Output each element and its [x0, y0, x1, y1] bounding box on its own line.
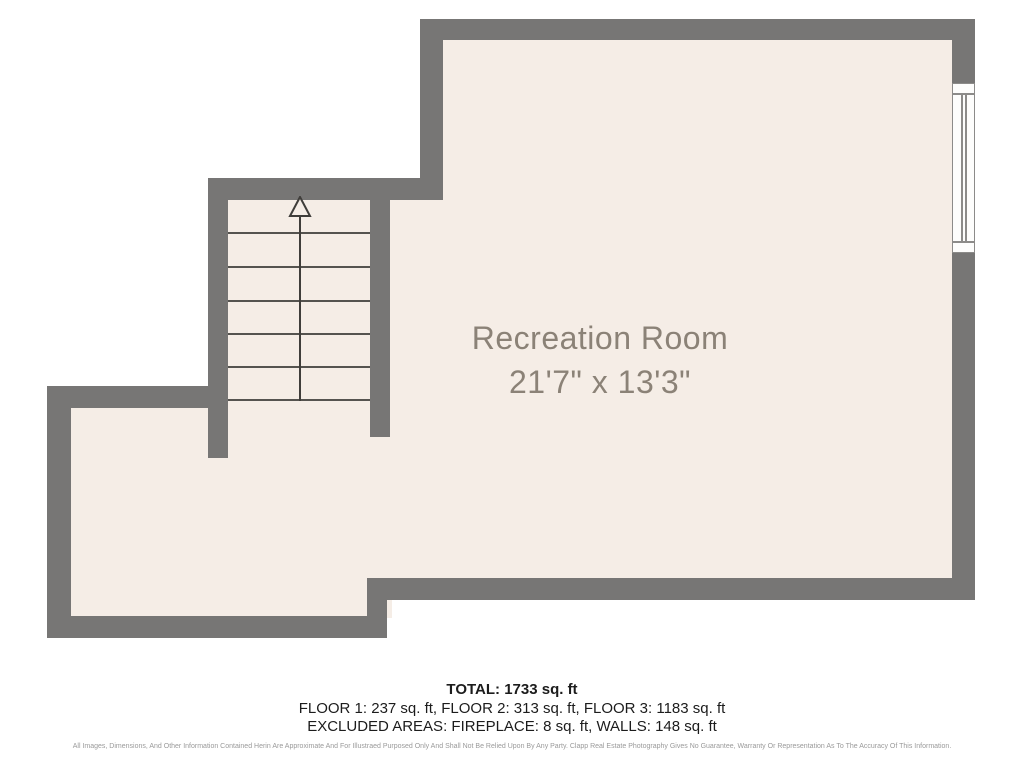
summary-total: TOTAL: 1733 sq. ft	[0, 681, 1024, 700]
wall-stairwell-left	[208, 178, 228, 458]
disclaimer-text: All Images, Dimensions, And Other Inform…	[0, 742, 1024, 751]
room-name: Recreation Room	[420, 316, 780, 360]
stair-direction-line	[299, 214, 301, 401]
summary-excluded: EXCLUDED AREAS: FIREPLACE: 8 sq. ft, WAL…	[0, 718, 1024, 737]
window-icon	[952, 83, 975, 253]
floor-area-main-upper	[440, 38, 954, 202]
floor-area-lower-room	[69, 406, 387, 618]
room-label-block: Recreation Room 21'7" x 13'3"	[420, 316, 780, 404]
wall-lower-room-bottom	[47, 616, 387, 638]
area-summary: TOTAL: 1733 sq. ft FLOOR 1: 237 sq. ft, …	[0, 681, 1024, 737]
wall-lower-room-top	[47, 386, 228, 408]
room-dimensions: 21'7" x 13'3"	[420, 360, 780, 404]
stair-up-arrow-icon	[288, 196, 312, 218]
wall-main-bottom	[367, 578, 975, 600]
wall-stairwell-right	[370, 178, 390, 437]
window-pane-line	[961, 94, 967, 242]
floorplan-canvas: Recreation Room 21'7" x 13'3"	[0, 0, 1024, 768]
wall-stairwell-top	[208, 178, 443, 200]
window-frame-line	[953, 241, 974, 243]
summary-floors: FLOOR 1: 237 sq. ft, FLOOR 2: 313 sq. ft…	[0, 700, 1024, 719]
wall-lower-room-left	[47, 386, 71, 638]
wall-left-upper	[420, 19, 443, 200]
wall-top	[420, 19, 975, 40]
